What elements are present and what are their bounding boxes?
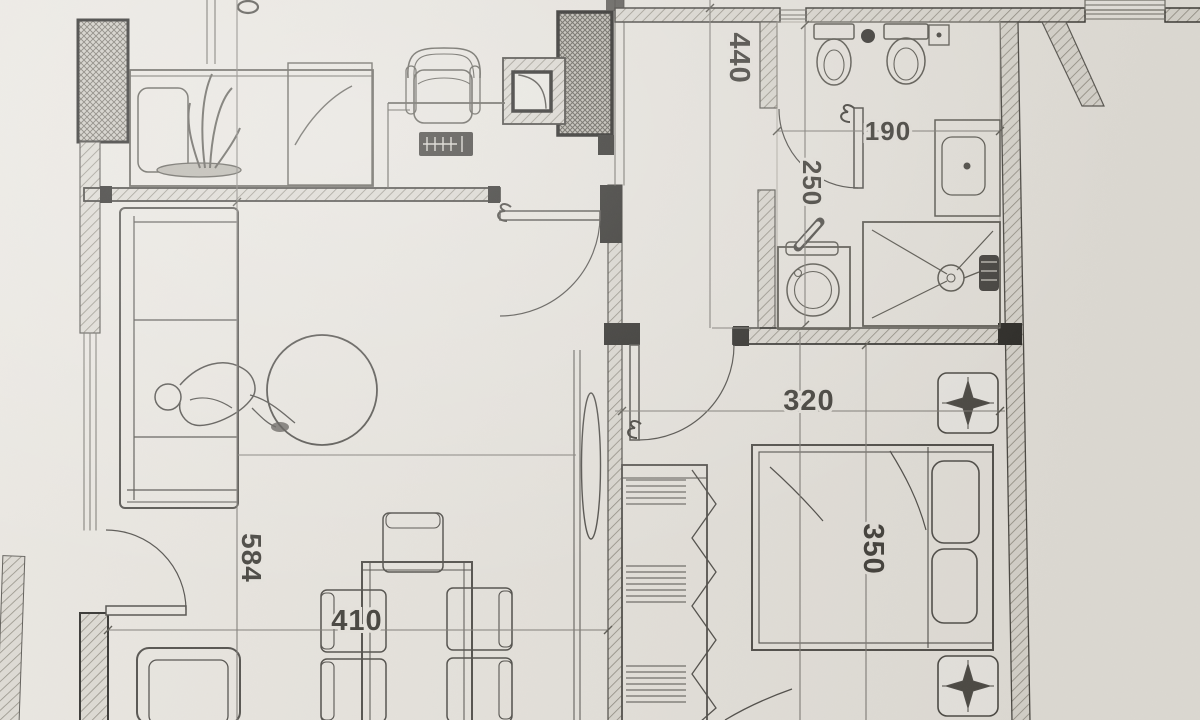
floor-plan-drawing: 440 190 250 320 350 584 410 [0, 0, 1200, 720]
floor-plan-photo: 440 190 250 320 350 584 410 [0, 0, 1200, 720]
paper-texture [0, 0, 1200, 720]
